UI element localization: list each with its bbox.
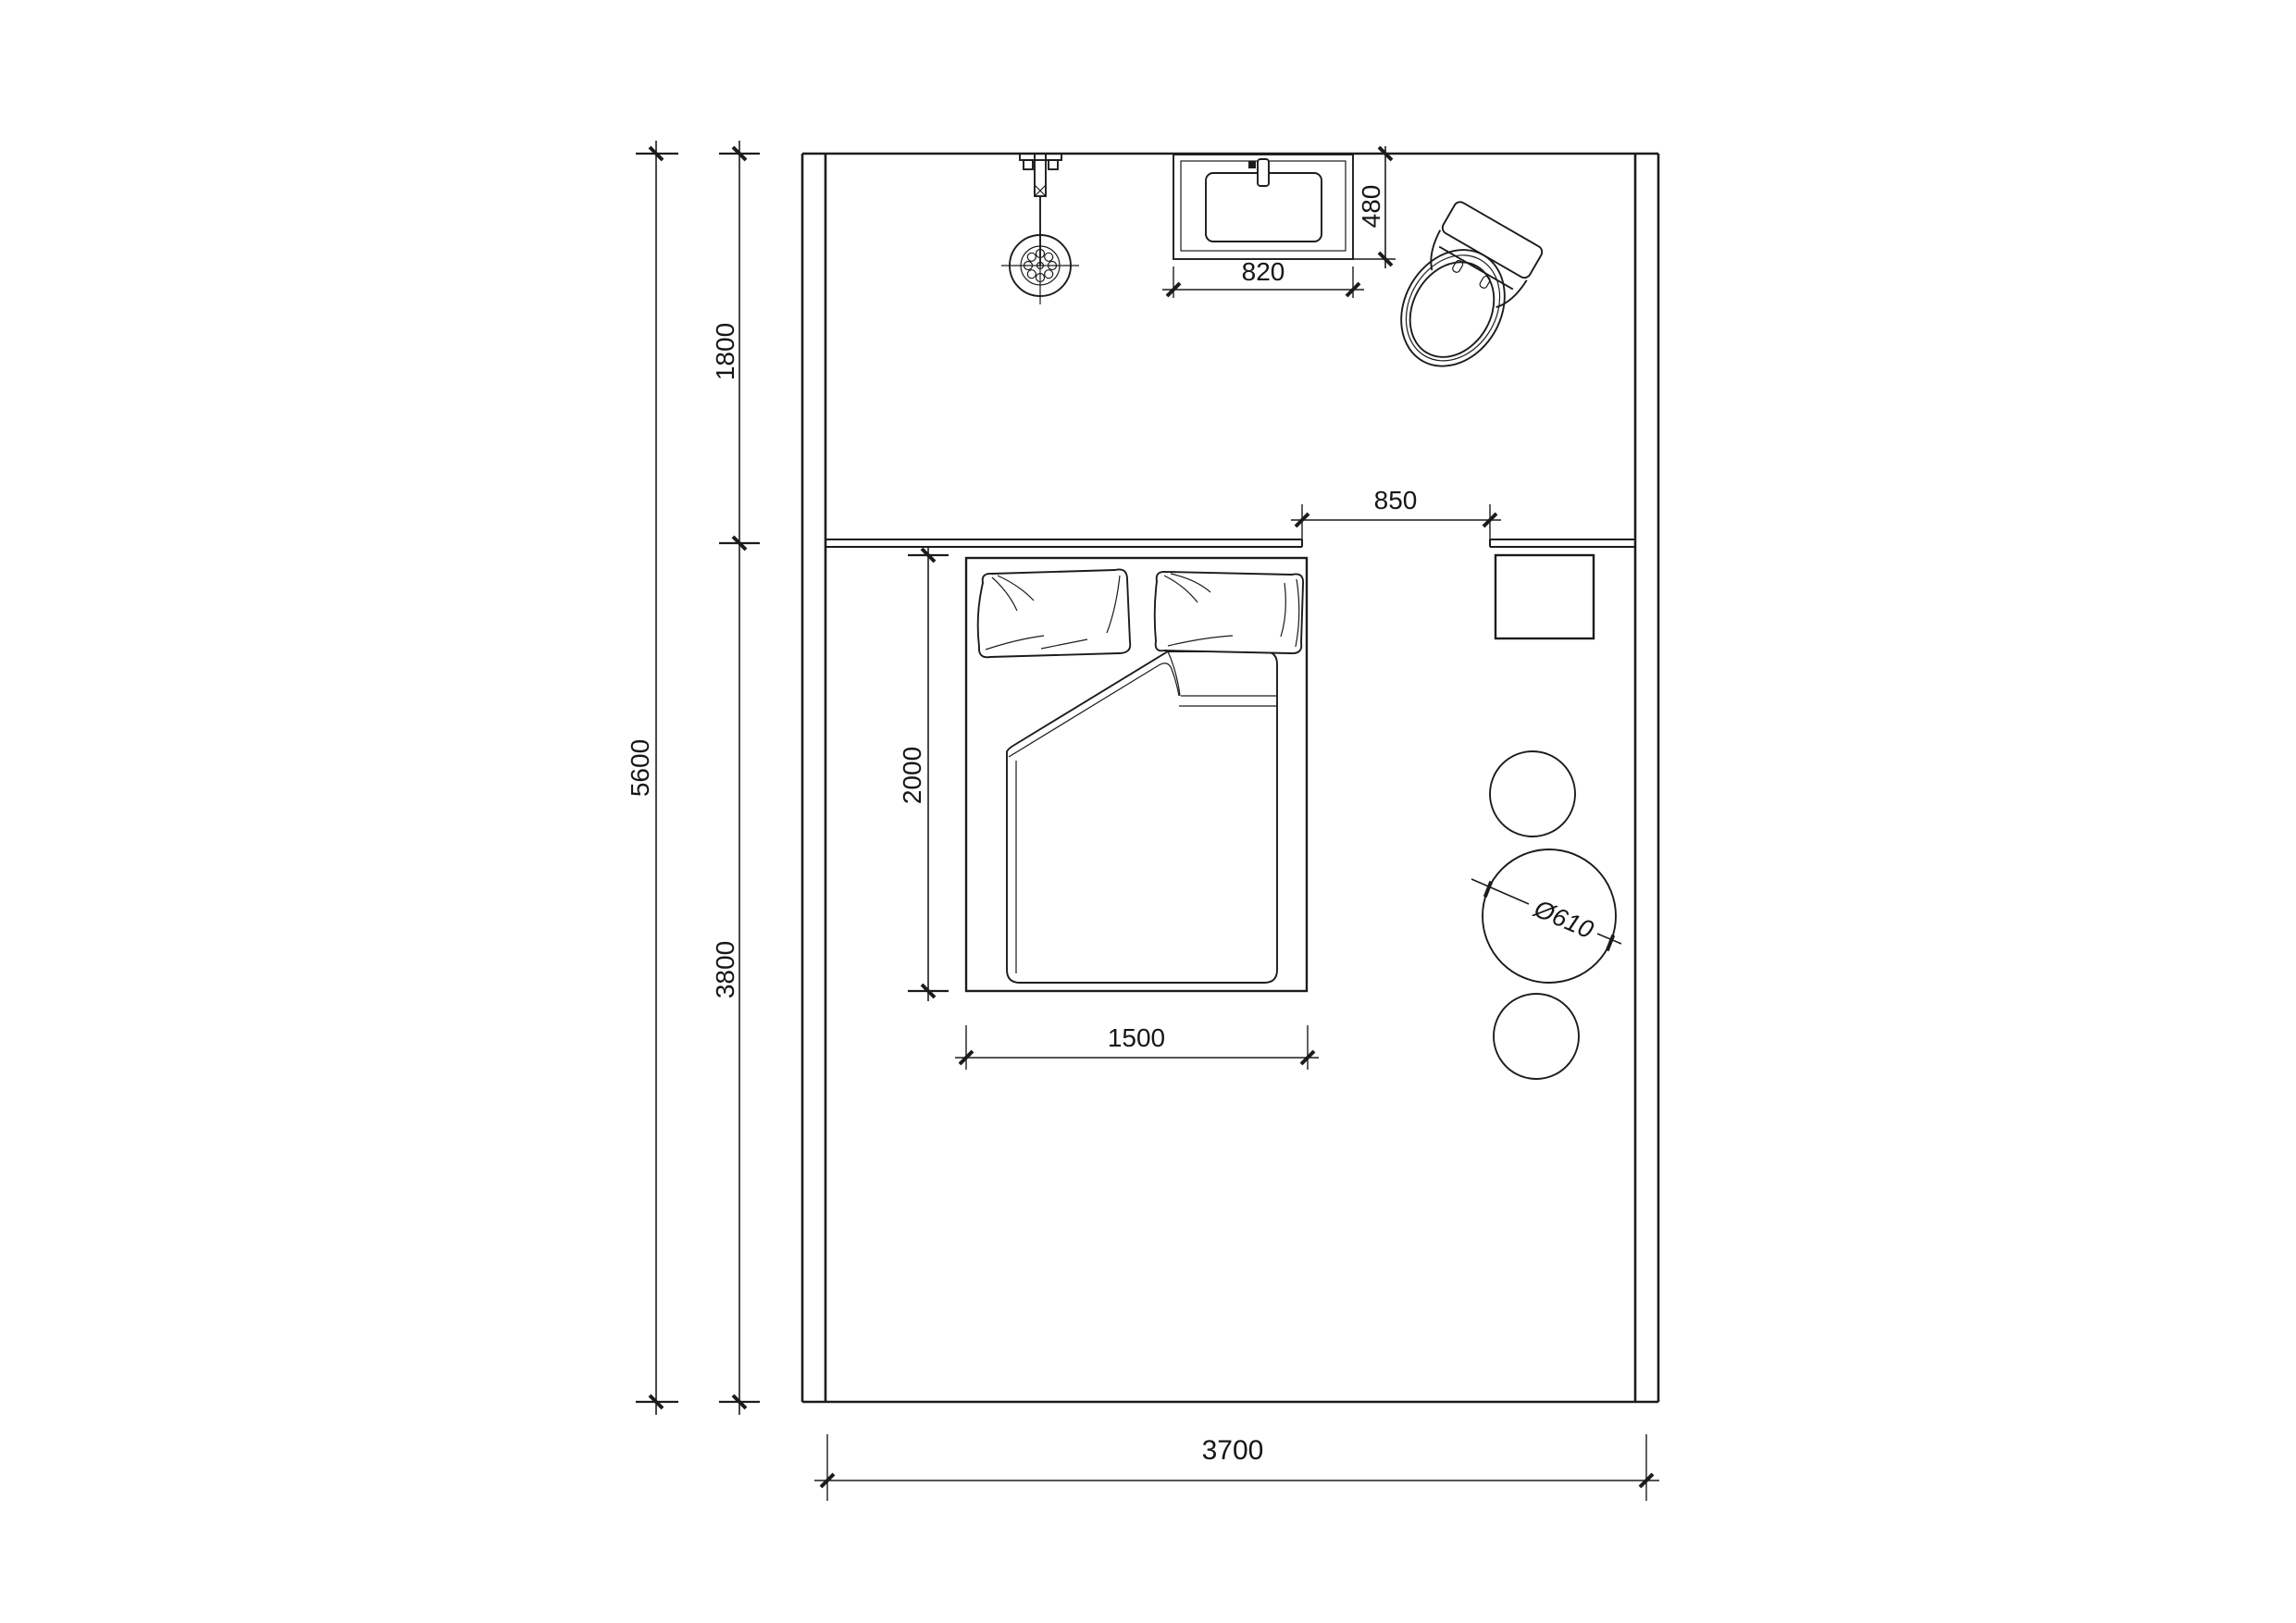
- dim-label-5600: 5600: [626, 739, 654, 797]
- dim-label-820: 820: [1242, 257, 1285, 286]
- floor-plan-page: 5600 1800 3800 3700 850 820: [0, 0, 2296, 1623]
- dim-label-1500: 1500: [1108, 1023, 1165, 1052]
- pillow-left-outline: [978, 569, 1131, 657]
- dim-line-segment: [1471, 879, 1529, 904]
- dim-label-2000: 2000: [898, 747, 926, 804]
- shower-wall-tab-left: [1024, 160, 1033, 169]
- dim-bed-width: 1500: [955, 1023, 1319, 1070]
- toilet-hinge-right: [1479, 275, 1491, 289]
- dim-zone-depths: 1800 3800: [711, 141, 760, 1415]
- dim-label-3800: 3800: [711, 941, 739, 998]
- basin-faucet: [1258, 159, 1269, 186]
- pillow-right: [1155, 572, 1303, 653]
- dim-total-depth: 5600: [626, 141, 678, 1415]
- toilet-bowl-mid: [1387, 238, 1518, 378]
- bed-fixture: [966, 558, 1307, 991]
- washbasin-fixture: [1173, 155, 1353, 259]
- shower-fixture: [1001, 154, 1079, 304]
- toilet-tank: [1440, 200, 1545, 280]
- side-table: [1496, 555, 1594, 638]
- dim-wall-opening: 850: [1291, 486, 1501, 539]
- dim-bed-length: 2000: [898, 548, 949, 1001]
- toilet-wing-right: [1496, 274, 1527, 314]
- nozzle: [1045, 270, 1053, 279]
- nozzle: [1027, 270, 1036, 279]
- dim-basin-width: 820: [1162, 257, 1364, 298]
- dim-stool-diameter: Ø610: [1471, 879, 1621, 950]
- pillow-right-outline: [1155, 572, 1303, 653]
- shower-wall-tab-right: [1049, 160, 1058, 169]
- basin-faucet-handle: [1248, 161, 1256, 168]
- stool-small-bottom: [1494, 994, 1579, 1079]
- pillow-left: [978, 569, 1131, 657]
- bed-duvet: [1007, 651, 1277, 983]
- floor-plan-drawing: 5600 1800 3800 3700 850 820: [0, 0, 2296, 1623]
- stool-small-top: [1490, 751, 1575, 836]
- nozzle: [1027, 253, 1036, 261]
- toilet-bowl-inner: [1394, 247, 1511, 373]
- dim-total-width: 3700: [814, 1434, 1659, 1501]
- dim-label-3700: 3700: [1202, 1435, 1264, 1466]
- dim-label-dia610: Ø610: [1530, 894, 1597, 944]
- dim-label-850: 850: [1374, 486, 1418, 514]
- nozzle: [1045, 253, 1053, 261]
- toilet-seat-hinge-line: [1439, 247, 1513, 290]
- dim-tick-slash: [1485, 882, 1492, 898]
- dim-label-480: 480: [1357, 185, 1385, 229]
- dim-basin-depth: 480: [1353, 146, 1396, 268]
- dim-label-1800: 1800: [711, 323, 739, 380]
- toilet-fixture: [1379, 200, 1545, 386]
- partition-wall: [825, 539, 1635, 547]
